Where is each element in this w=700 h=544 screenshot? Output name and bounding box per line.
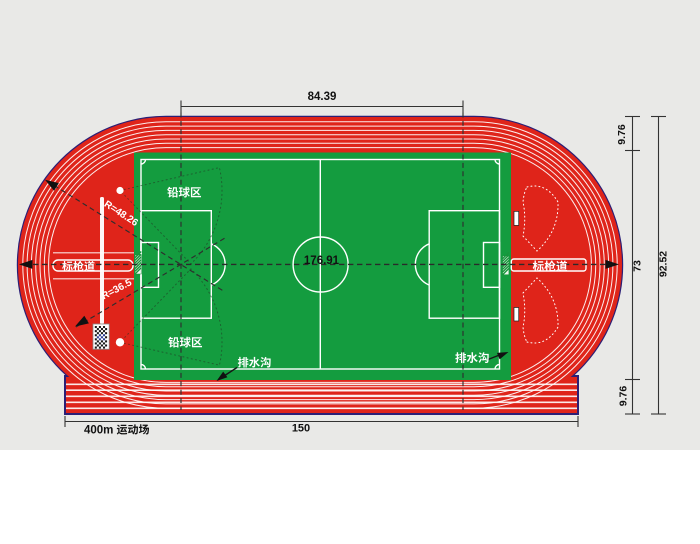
svg-text:9.76: 9.76 <box>616 124 628 145</box>
svg-text:9.76: 9.76 <box>618 386 630 407</box>
svg-text:73: 73 <box>632 260 644 272</box>
svg-text:92.52: 92.52 <box>658 251 670 277</box>
svg-text:400m: 400m <box>84 425 113 437</box>
svg-text:176.91: 176.91 <box>304 255 340 267</box>
svg-text:84.39: 84.39 <box>308 91 337 103</box>
svg-text:150: 150 <box>292 423 310 435</box>
